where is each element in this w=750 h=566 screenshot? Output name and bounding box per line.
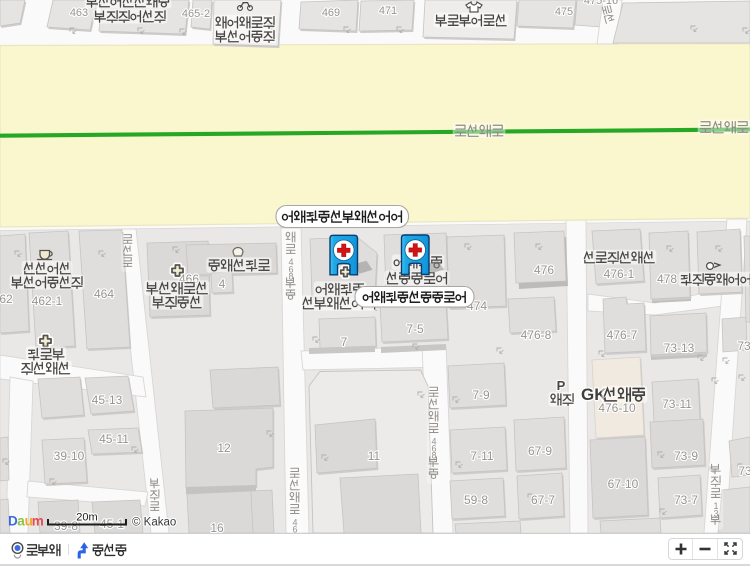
svg-text:7-5: 7-5	[406, 322, 424, 336]
svg-text:476-7: 476-7	[607, 328, 638, 342]
svg-text:73-11: 73-11	[662, 397, 692, 411]
svg-text:476-8: 476-8	[521, 328, 552, 342]
svg-text:478: 478	[657, 272, 677, 286]
svg-text:475: 475	[555, 6, 573, 18]
svg-text:476-1: 476-1	[604, 267, 635, 281]
svg-text:462-1: 462-1	[32, 294, 63, 308]
svg-text:464: 464	[94, 287, 114, 301]
svg-text:20m: 20m	[76, 512, 97, 524]
svg-text:62: 62	[0, 292, 13, 306]
svg-text:39-8: 39-8	[54, 519, 78, 533]
svg-text:465-2: 465-2	[182, 8, 210, 20]
svg-text:67-7: 67-7	[531, 493, 555, 507]
svg-text:P: P	[557, 378, 566, 393]
svg-text:4: 4	[219, 277, 226, 291]
svg-text:59-8: 59-8	[464, 493, 488, 507]
svg-text:469: 469	[322, 7, 340, 19]
svg-text:463: 463	[70, 7, 88, 19]
svg-text:12: 12	[217, 441, 231, 455]
svg-text:73-: 73-	[738, 464, 750, 478]
svg-text:m: m	[32, 514, 44, 529]
svg-text:476: 476	[534, 263, 554, 277]
svg-text:11: 11	[368, 449, 381, 463]
svg-text:67-10: 67-10	[608, 477, 639, 491]
svg-text:7-9: 7-9	[472, 388, 490, 402]
svg-text:475-16: 475-16	[584, 0, 618, 7]
svg-text:471: 471	[379, 5, 397, 17]
svg-text:73-7: 73-7	[674, 493, 698, 507]
svg-text:73-9: 73-9	[674, 449, 698, 463]
svg-text:45-11: 45-11	[99, 432, 129, 446]
svg-text:73-13: 73-13	[664, 341, 695, 355]
svg-text:7: 7	[341, 335, 348, 349]
svg-text:7-11: 7-11	[470, 449, 493, 463]
svg-text:39-10: 39-10	[54, 449, 85, 463]
svg-text:© Kakao: © Kakao	[132, 517, 176, 529]
svg-text:73-: 73-	[737, 339, 750, 353]
svg-text:45-13: 45-13	[92, 393, 123, 407]
svg-text:16: 16	[210, 521, 224, 533]
svg-text:67-9: 67-9	[528, 444, 552, 458]
